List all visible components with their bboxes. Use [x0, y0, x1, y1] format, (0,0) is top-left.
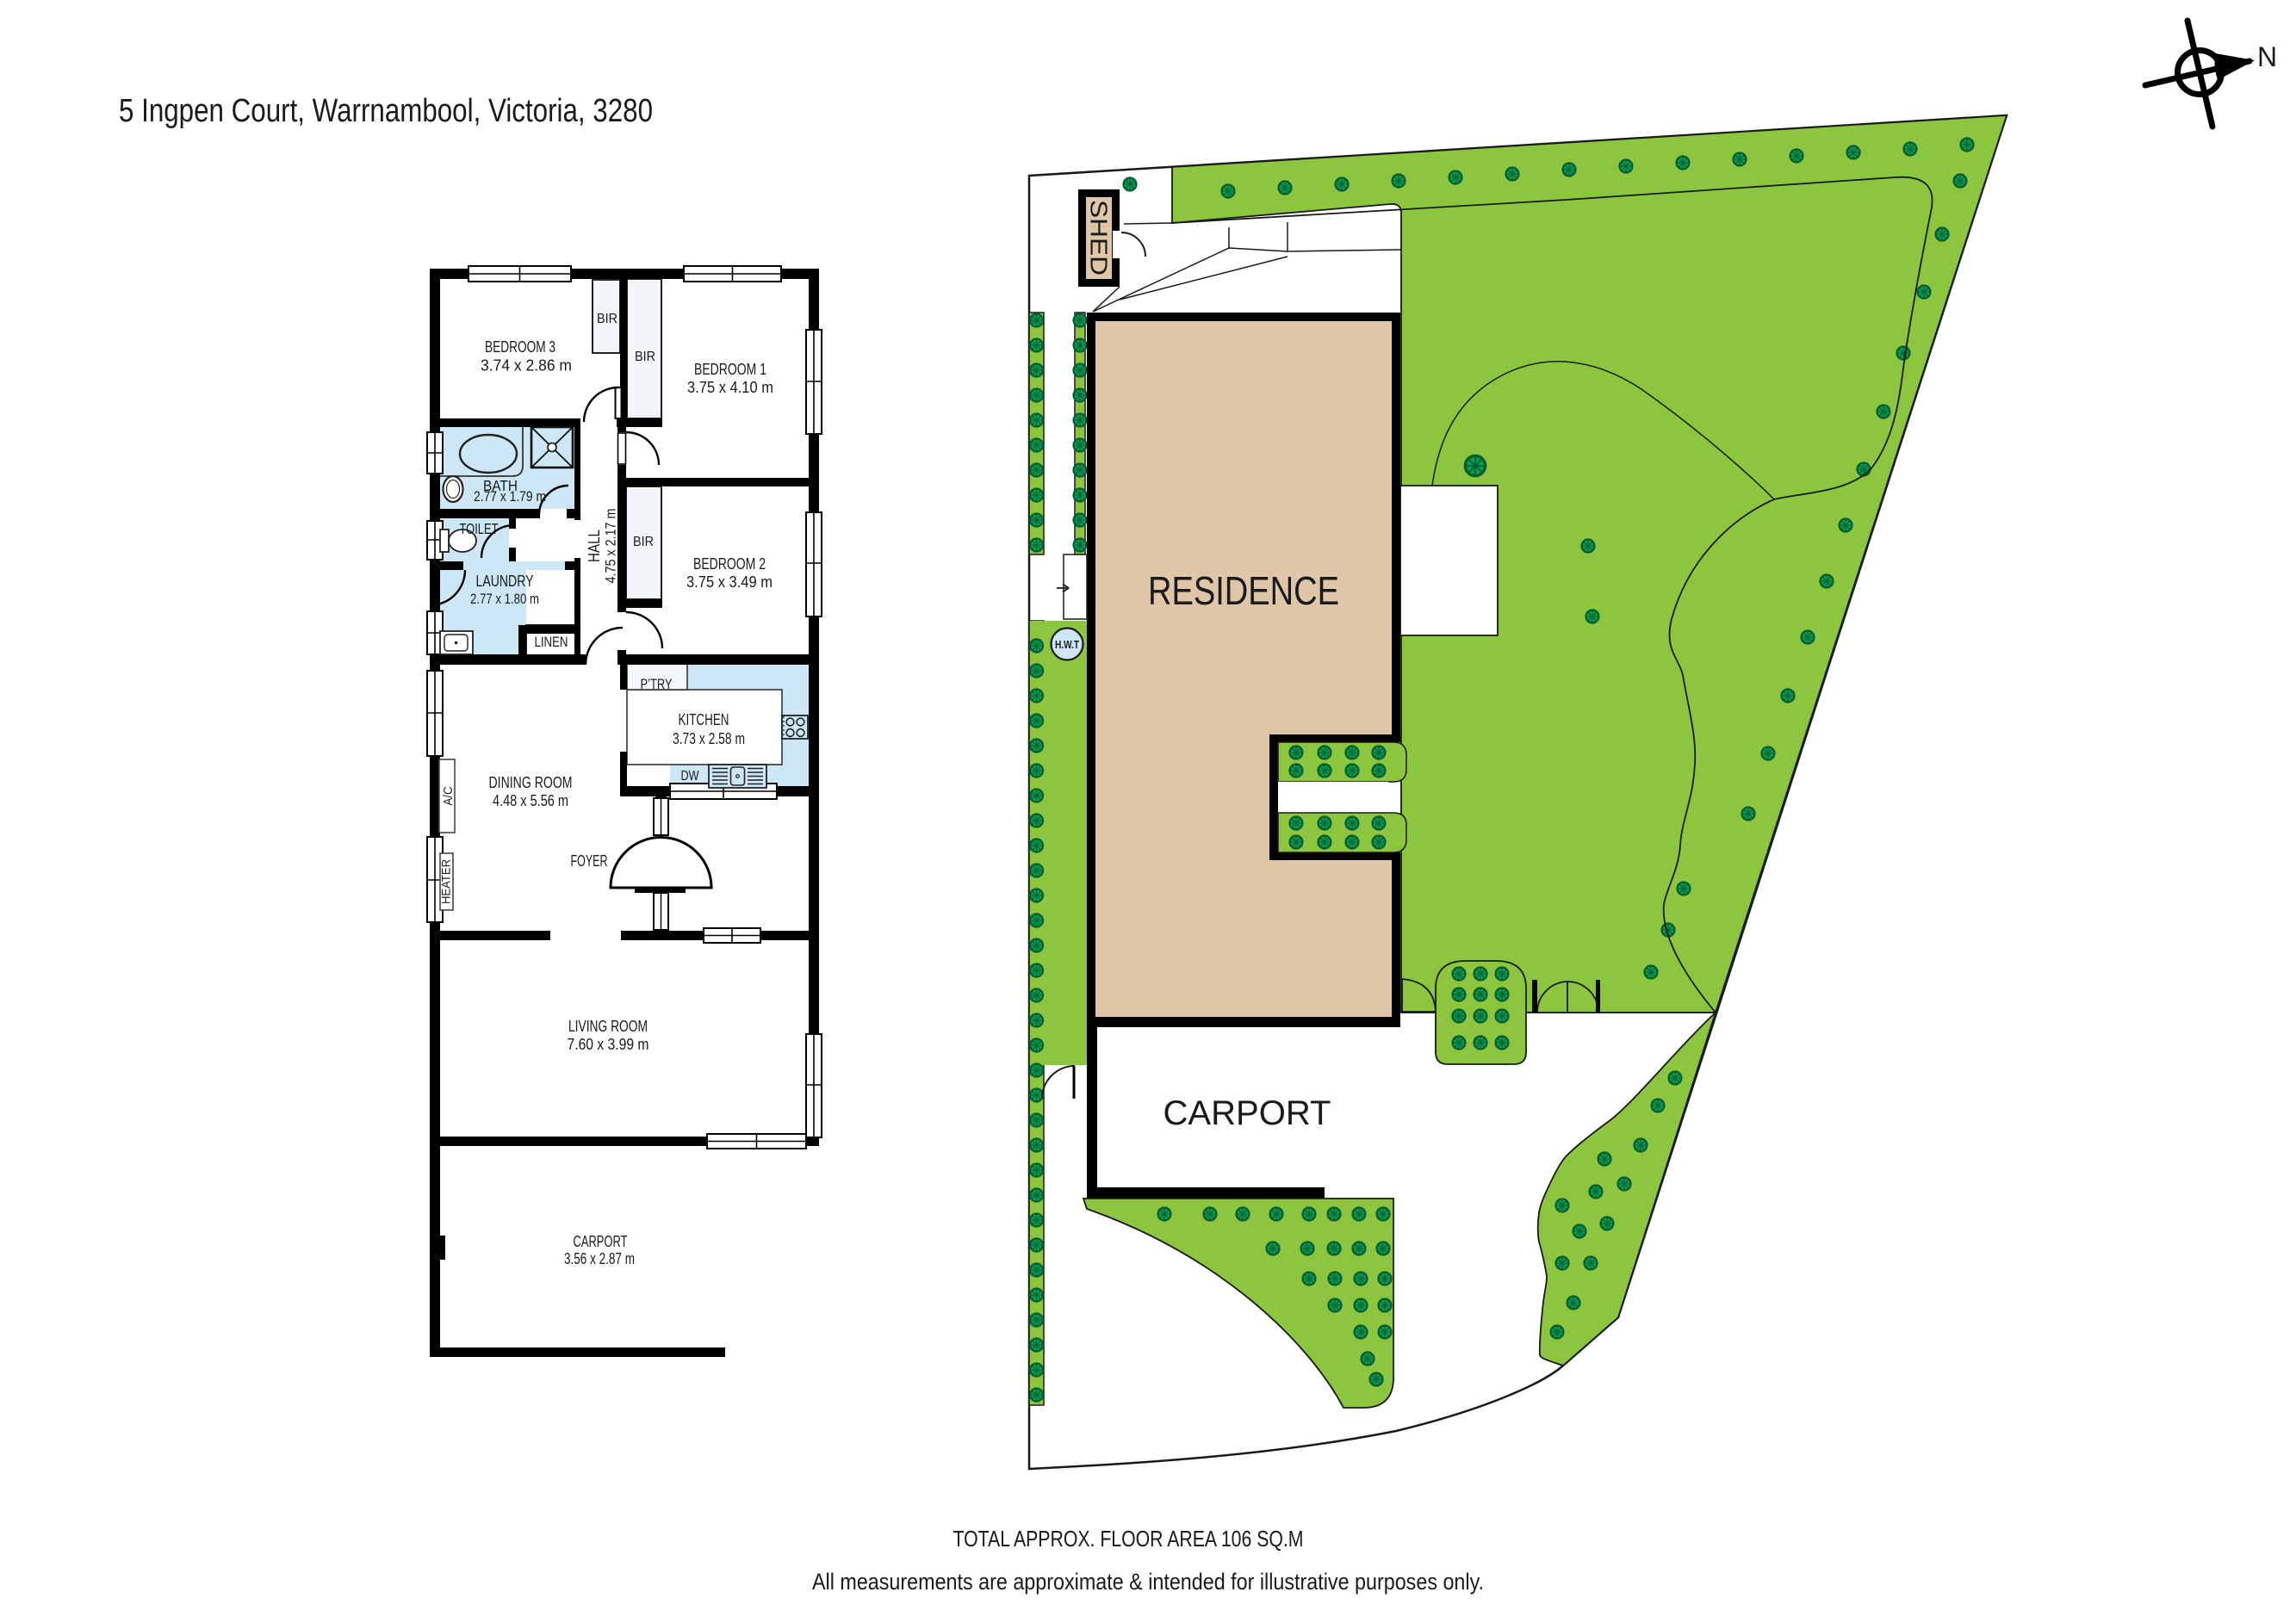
svg-text:H.W.T: H.W.T: [1055, 639, 1079, 651]
svg-text:BIR: BIR: [635, 350, 655, 364]
svg-text:3.73 x 2.58 m: 3.73 x 2.58 m: [673, 730, 745, 747]
svg-text:CARPORT: CARPORT: [1164, 1094, 1331, 1132]
svg-text:FOYER: FOYER: [571, 852, 608, 870]
svg-text:4.48 x 5.56 m: 4.48 x 5.56 m: [493, 792, 568, 809]
svg-text:TOTAL APPROX. FLOOR AREA 106 S: TOTAL APPROX. FLOOR AREA 106 SQ.M: [953, 1526, 1304, 1552]
svg-text:BEDROOM 3: BEDROOM 3: [485, 338, 555, 356]
svg-text:DINING ROOM: DINING ROOM: [489, 774, 573, 791]
svg-text:3.74 x 2.86 m: 3.74 x 2.86 m: [481, 357, 572, 375]
svg-text:3.75 x 3.49 m: 3.75 x 3.49 m: [686, 573, 773, 591]
svg-text:3.75 x 4.10 m: 3.75 x 4.10 m: [687, 379, 773, 396]
svg-text:A/C: A/C: [441, 786, 456, 805]
svg-text:3.56 x 2.87 m: 3.56 x 2.87 m: [564, 1250, 635, 1267]
svg-text:TOILET: TOILET: [460, 520, 499, 537]
svg-text:KITCHEN: KITCHEN: [679, 711, 729, 728]
svg-text:LAUNDRY: LAUNDRY: [476, 573, 534, 590]
svg-text:SHED: SHED: [1086, 200, 1113, 276]
svg-text:2.77 x 1.80 m: 2.77 x 1.80 m: [470, 591, 539, 607]
svg-text:BEDROOM 2: BEDROOM 2: [693, 555, 766, 573]
svg-text:LINEN: LINEN: [535, 634, 568, 650]
svg-text:All measurements are approxima: All measurements are approximate & inten…: [812, 1569, 1484, 1595]
svg-text:4.75 x 2.17 m: 4.75 x 2.17 m: [603, 509, 619, 584]
svg-text:BEDROOM 1: BEDROOM 1: [694, 361, 766, 378]
svg-text:5 Ingpen Court, Warrnambool, V: 5 Ingpen Court, Warrnambool, Victoria, 3…: [119, 93, 653, 129]
svg-text:RESIDENCE: RESIDENCE: [1148, 568, 1339, 613]
svg-text:DW: DW: [681, 769, 700, 784]
svg-text:BIR: BIR: [597, 312, 617, 326]
svg-text:P’TRY: P’TRY: [641, 676, 673, 692]
svg-text:BIR: BIR: [633, 535, 654, 549]
svg-text:LIVING ROOM: LIVING ROOM: [568, 1018, 648, 1035]
svg-text:N: N: [2257, 41, 2277, 72]
svg-text:CARPORT: CARPORT: [574, 1233, 628, 1250]
svg-text:HALL: HALL: [586, 530, 603, 562]
svg-text:7.60 x 3.99 m: 7.60 x 3.99 m: [568, 1036, 649, 1053]
svg-text:HEATER: HEATER: [439, 859, 453, 904]
svg-text:2.77 x 1.79 m: 2.77 x 1.79 m: [474, 488, 546, 505]
